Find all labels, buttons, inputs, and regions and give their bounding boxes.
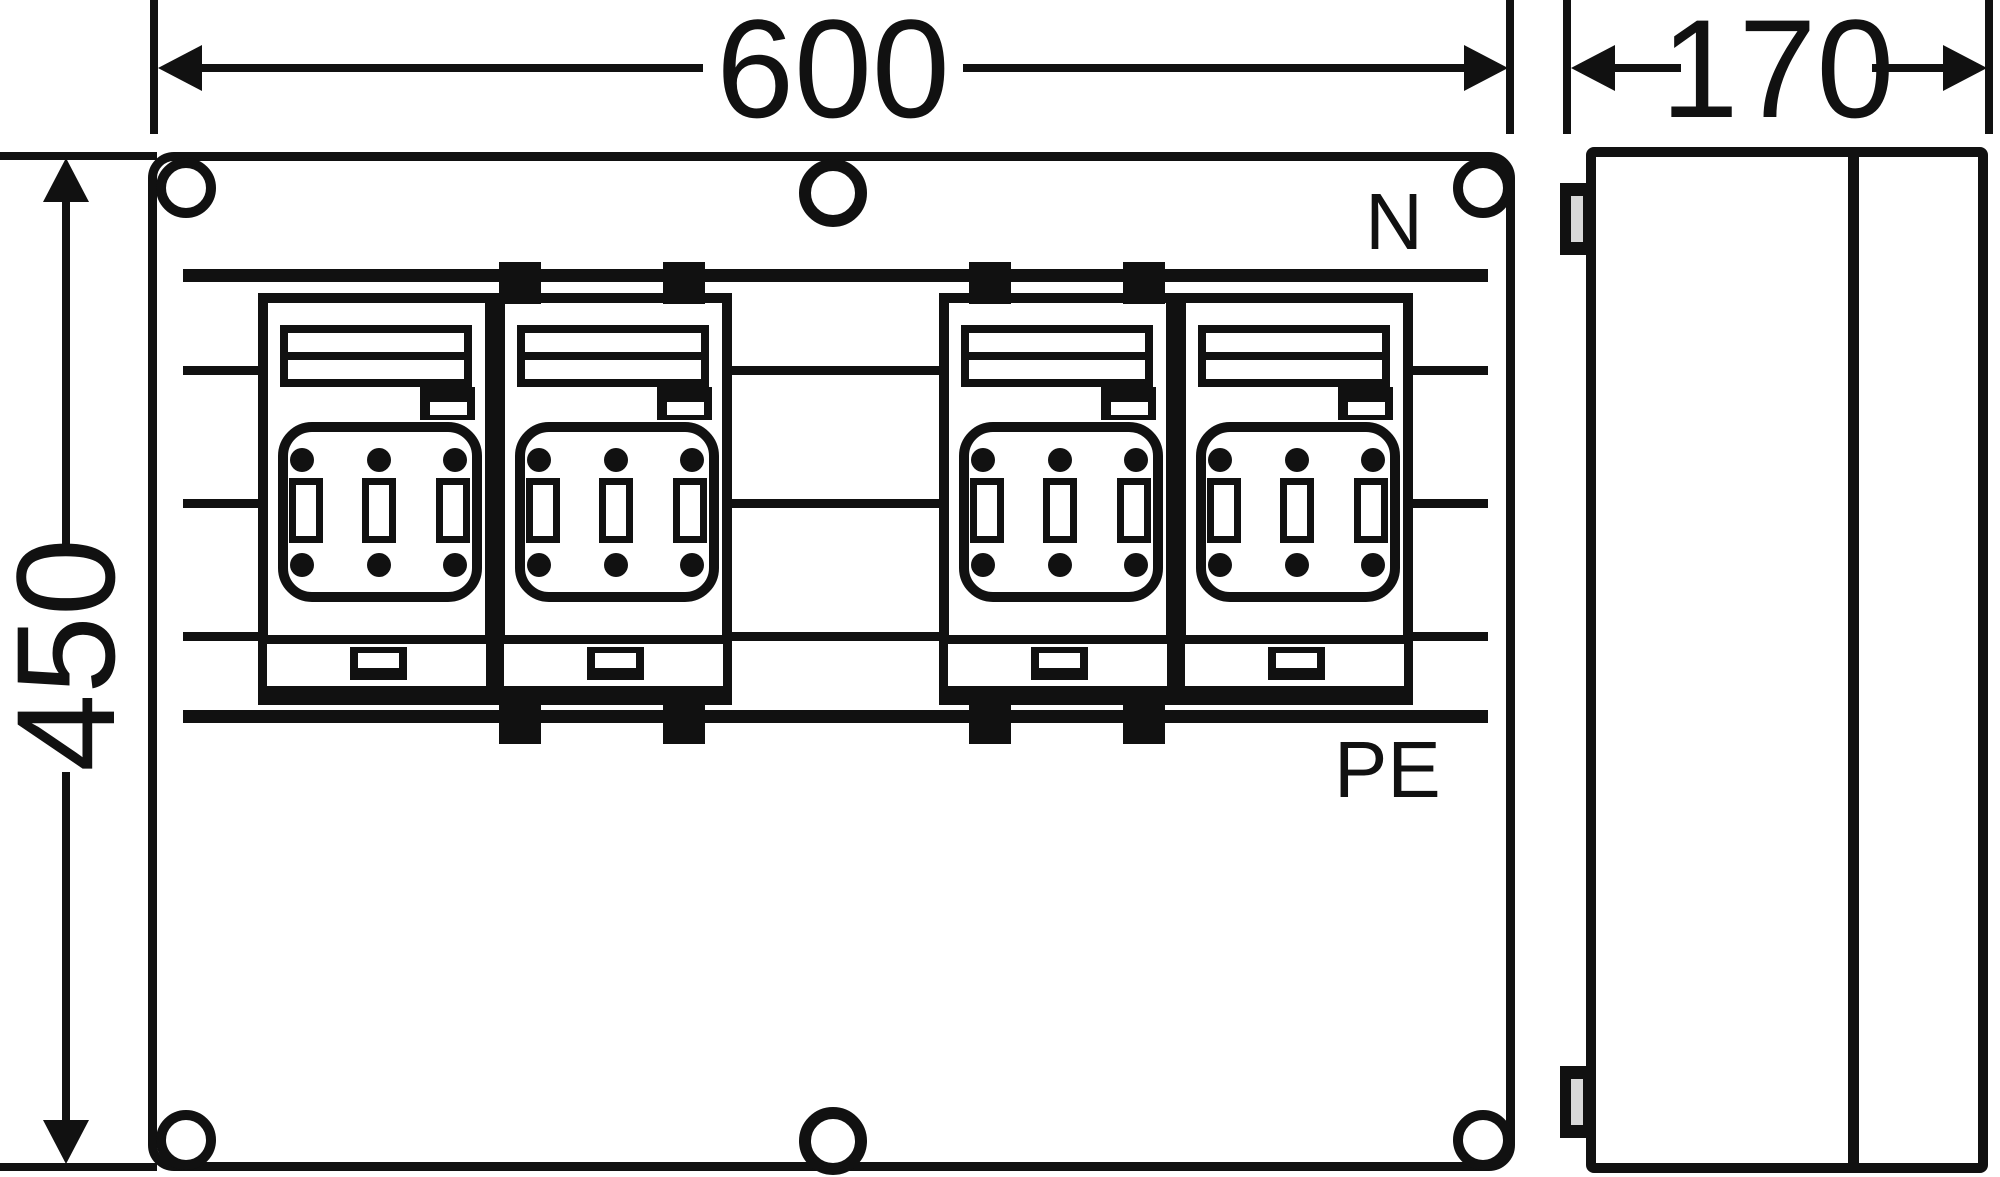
pe-busbar-tab — [663, 700, 705, 744]
terminal-dot — [1208, 553, 1232, 577]
fuse-label-strip — [1198, 325, 1390, 387]
dim-width-arrow-right-icon — [1464, 45, 1508, 91]
fuse-slot — [436, 478, 470, 543]
dim-width-line-right — [963, 64, 1467, 72]
fuse-slot — [526, 478, 560, 543]
fuse-slot — [1117, 478, 1151, 543]
fuse-label-strip — [280, 325, 472, 387]
terminal-dot — [527, 448, 551, 472]
fuse-slot — [599, 478, 633, 543]
fuse-label-strip — [517, 325, 709, 387]
neutral-busbar — [183, 269, 1488, 282]
terminal-dot — [367, 553, 391, 577]
terminal-dot — [604, 553, 628, 577]
terminal-dot — [367, 448, 391, 472]
dim-height-arrow-down-icon — [43, 1120, 89, 1164]
fuse-slot — [362, 478, 396, 543]
fuse-module — [959, 422, 1163, 602]
dim-depth-arrow-right-icon — [1943, 45, 1987, 91]
fuse-slot — [1207, 478, 1241, 543]
pe-busbar-tab — [969, 700, 1011, 744]
dim-height-label: 450 — [11, 515, 121, 795]
dim-width-arrow-left-icon — [158, 45, 202, 91]
mounting-hole-top-middle — [799, 159, 867, 227]
fuse-slot — [970, 478, 1004, 543]
fuse-module — [515, 422, 719, 602]
fuse-unit-3 — [939, 293, 1176, 705]
mounting-hole-bottom-left — [156, 1110, 216, 1170]
terminal-dot — [1361, 553, 1385, 577]
fuse-bottom-tab — [350, 647, 407, 680]
dim-height-line-top — [62, 200, 70, 548]
fuse-latch — [1338, 387, 1393, 420]
terminal-dot — [1048, 448, 1072, 472]
fuse-bottom-tab — [1031, 647, 1088, 680]
fuse-latch — [420, 387, 475, 420]
extension-line-depth-left — [1563, 0, 1571, 134]
terminal-dot — [443, 553, 467, 577]
fuse-slot — [289, 478, 323, 543]
mounting-hole-top-left — [156, 158, 216, 218]
side-view-cover-divider — [1848, 147, 1859, 1173]
enclosure-technical-drawing: 600 170 450 N PE — [0, 0, 2000, 1177]
terminal-dot — [1208, 448, 1232, 472]
extension-line-bottom — [0, 1163, 157, 1171]
terminal-dot — [680, 448, 704, 472]
mounting-hole-bottom-right — [1453, 1110, 1513, 1170]
mounting-hole-bottom-middle — [799, 1107, 867, 1175]
fuse-module — [278, 422, 482, 602]
pe-busbar-tab — [499, 700, 541, 744]
terminal-dot — [290, 448, 314, 472]
fuse-latch — [1101, 387, 1156, 420]
fuse-slot — [1043, 478, 1077, 543]
fuse-unit-4 — [1176, 293, 1413, 705]
extension-line-left — [150, 0, 158, 134]
terminal-dot — [1048, 553, 1072, 577]
terminal-dot — [290, 553, 314, 577]
dim-width-label: 600 — [703, 14, 963, 124]
fuse-bottom-tab — [587, 647, 644, 680]
pe-busbar — [183, 710, 1488, 723]
terminal-dot — [971, 553, 995, 577]
terminal-dot — [604, 448, 628, 472]
dim-height-arrow-up-icon — [43, 158, 89, 202]
terminal-dot — [527, 553, 551, 577]
fuse-label-strip — [961, 325, 1153, 387]
terminal-dot — [1361, 448, 1385, 472]
fuse-slot — [1280, 478, 1314, 543]
fuse-slot — [673, 478, 707, 543]
terminal-dot — [680, 553, 704, 577]
terminal-dot — [1285, 448, 1309, 472]
pe-busbar-tab — [1123, 700, 1165, 744]
terminal-dot — [1124, 448, 1148, 472]
n-busbar-tab — [1123, 262, 1165, 304]
fuse-bottom-tab — [1268, 647, 1325, 680]
terminal-dot — [971, 448, 995, 472]
mounting-hole-top-right — [1453, 158, 1513, 218]
fuse-module — [1196, 422, 1400, 602]
n-busbar-tab — [499, 262, 541, 304]
terminal-dot — [1124, 553, 1148, 577]
fuse-latch — [657, 387, 712, 420]
dim-depth-arrow-left-icon — [1571, 45, 1615, 91]
fuse-unit-1 — [258, 293, 495, 705]
enclosure-side-view — [1586, 147, 1988, 1173]
neutral-label: N — [1346, 190, 1442, 254]
fuse-unit-2 — [495, 293, 732, 705]
terminal-dot — [443, 448, 467, 472]
fuse-slot — [1354, 478, 1388, 543]
dim-width-line-left — [198, 64, 703, 72]
dim-depth-label: 170 — [1660, 14, 1895, 124]
n-busbar-tab — [969, 262, 1011, 304]
terminal-dot — [1285, 553, 1309, 577]
dim-height-line-bottom — [62, 772, 70, 1122]
pe-label: PE — [1334, 738, 1438, 802]
n-busbar-tab — [663, 262, 705, 304]
